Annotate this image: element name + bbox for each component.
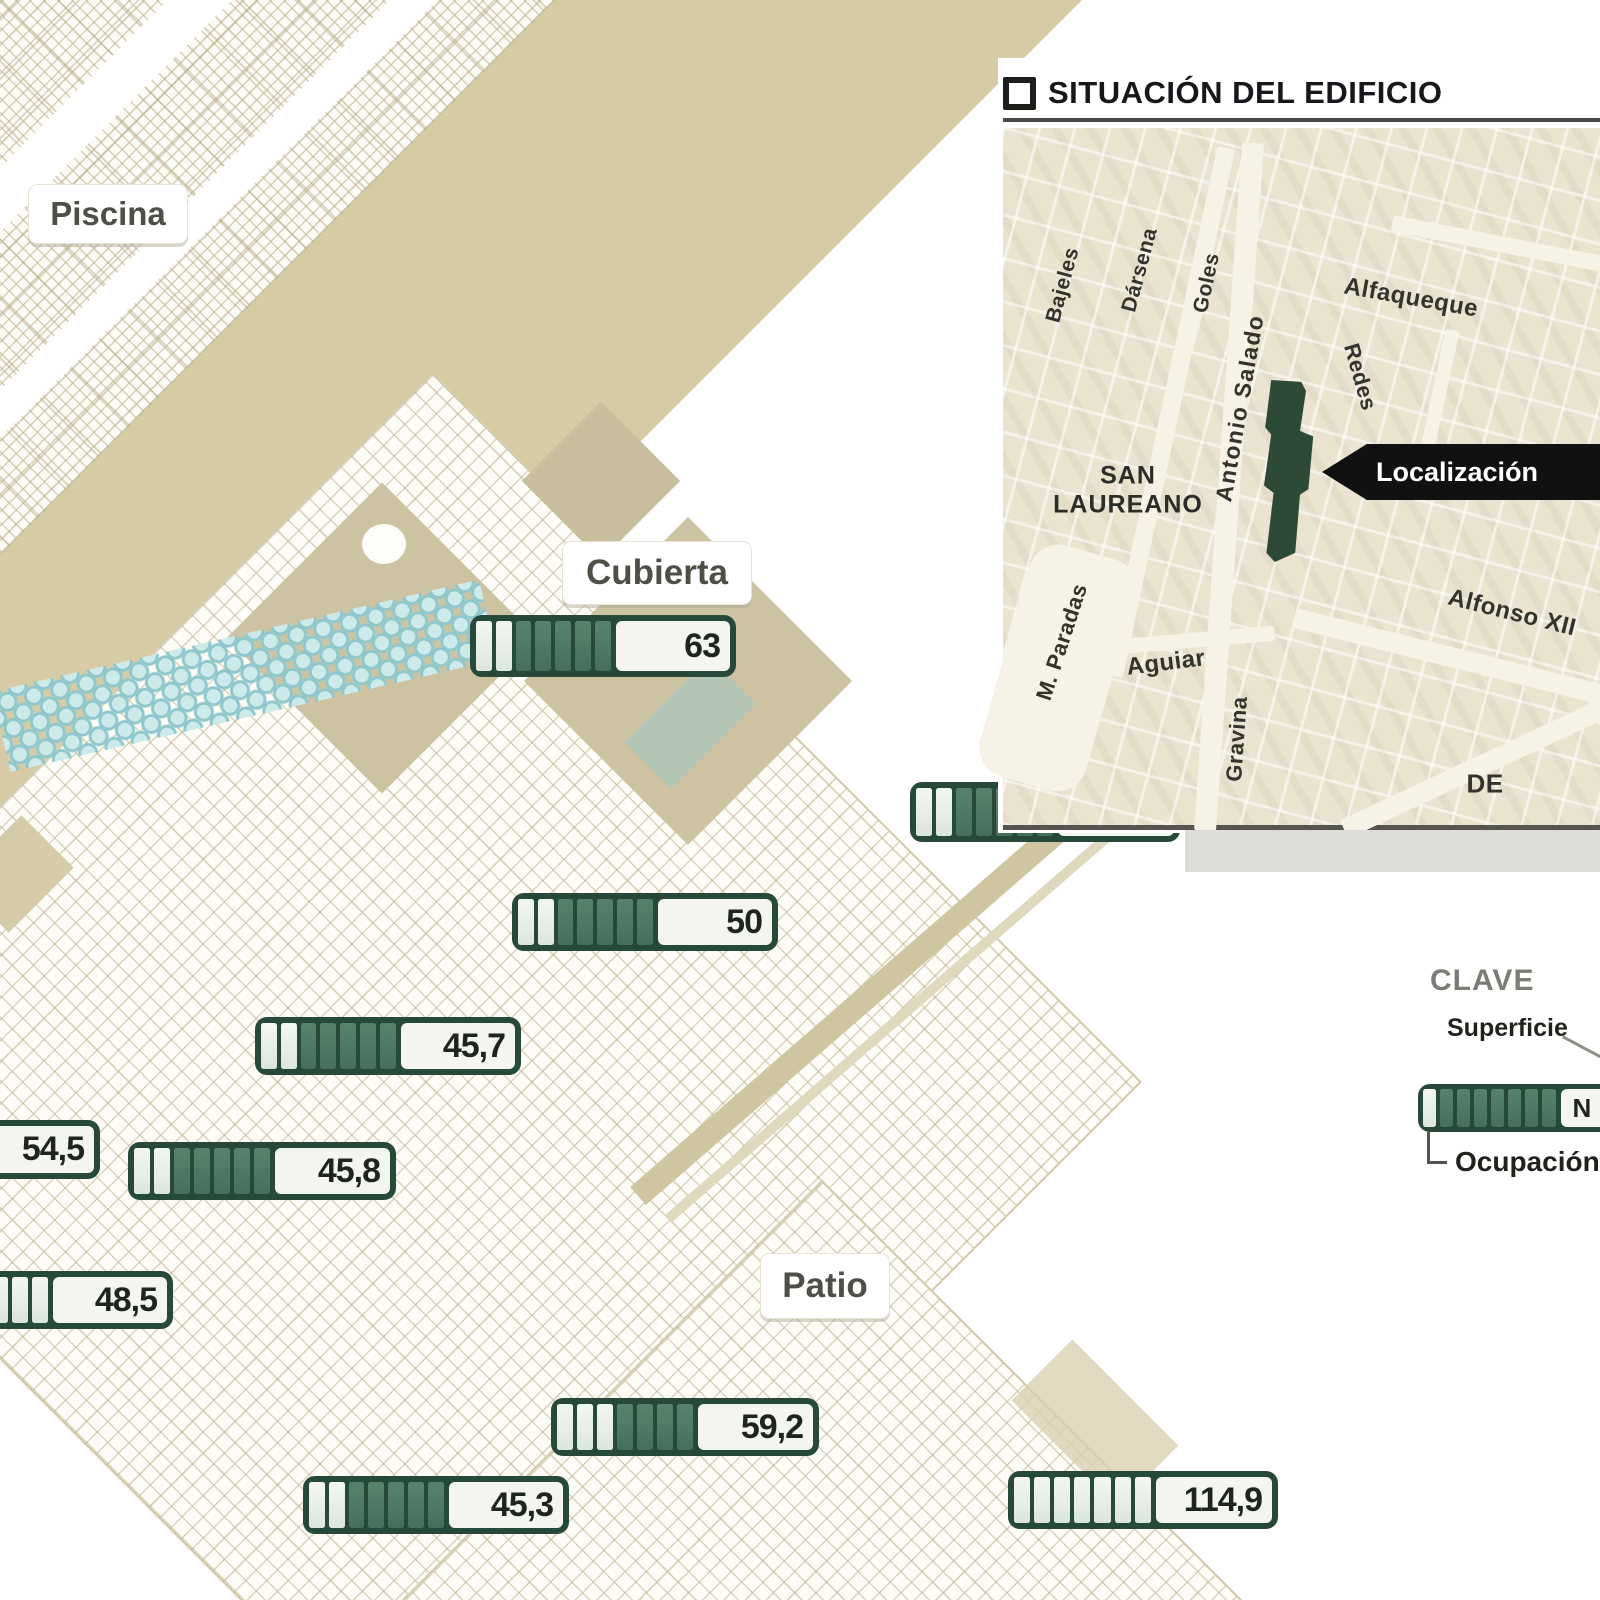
metric-badge: 50 <box>512 893 778 951</box>
occupancy-bar <box>261 1023 396 1069</box>
bar-segment <box>1054 1477 1070 1523</box>
map-street-shape <box>1391 215 1600 277</box>
legend-heading: CLAVE <box>1430 964 1534 998</box>
bar-segment <box>281 1023 297 1069</box>
bar-segment <box>558 899 574 945</box>
bar-segment <box>234 1148 250 1194</box>
map-title-text: SITUACIÓN DEL EDIFICIO <box>1048 75 1443 111</box>
highlighted-building <box>1258 380 1318 562</box>
bar-segment <box>1034 1477 1050 1523</box>
area-label-cubierta: Cubierta <box>562 541 752 605</box>
bar-segment <box>496 621 512 671</box>
bar-segment <box>1508 1089 1521 1127</box>
bar-segment <box>976 788 992 836</box>
bar-segment <box>134 1148 150 1194</box>
metric-badge: 114,9 <box>1008 1471 1278 1529</box>
surface-value: 59,2 <box>698 1404 813 1450</box>
legend-superficie-label: Superficie <box>1447 1014 1568 1043</box>
sample-value: N <box>1561 1089 1600 1127</box>
district-label: SAN LAUREANO <box>1053 461 1203 519</box>
map-title-rule <box>1003 118 1600 122</box>
legend-ocupacion-label: Ocupación <box>1455 1146 1600 1178</box>
occupancy-bar <box>518 899 653 945</box>
bar-segment <box>380 1023 396 1069</box>
bar-segment <box>538 899 554 945</box>
occupancy-bar <box>309 1482 444 1528</box>
bar-segment <box>194 1148 210 1194</box>
bar-segment <box>577 1404 593 1450</box>
surface-value: 48,5 <box>53 1277 167 1323</box>
bar-segment <box>518 899 534 945</box>
bar-segment <box>936 788 952 836</box>
occupancy-bar <box>1423 1089 1556 1127</box>
bar-segment <box>1440 1089 1453 1127</box>
surface-value: 63 <box>616 621 730 671</box>
bar-segment <box>637 1404 653 1450</box>
bar-segment <box>320 1023 336 1069</box>
legend-connector <box>1562 1035 1600 1059</box>
bar-segment <box>1014 1477 1030 1523</box>
legend-sample-badge: N <box>1418 1084 1600 1132</box>
bar-segment <box>388 1482 404 1528</box>
metric-badge: 48,5 <box>0 1271 173 1329</box>
bar-segment <box>214 1148 230 1194</box>
bar-segment <box>32 1277 48 1323</box>
bar-segment <box>657 1404 673 1450</box>
location-flag: Localización <box>1322 444 1600 500</box>
surface-value: 114,9 <box>1156 1477 1272 1523</box>
bar-segment <box>301 1023 317 1069</box>
metric-badge: 59,2 <box>551 1398 819 1456</box>
metric-badge: 45,8 <box>128 1142 396 1200</box>
bar-segment <box>12 1277 28 1323</box>
area-label-piscina: Piscina <box>28 184 188 244</box>
bar-segment <box>617 899 633 945</box>
surface-value: 54,5 <box>0 1126 94 1173</box>
bar-segment <box>0 1277 8 1323</box>
area-label-patio: Patio <box>760 1253 890 1319</box>
bar-segment <box>555 621 571 671</box>
occupancy-bar <box>134 1148 270 1194</box>
bar-segment <box>577 899 593 945</box>
occupancy-bar <box>557 1404 693 1450</box>
occupancy-bar <box>1014 1477 1151 1523</box>
bar-segment <box>261 1023 277 1069</box>
bar-segment <box>575 621 591 671</box>
street-label: DE <box>1466 769 1503 800</box>
bar-segment <box>677 1404 693 1450</box>
bar-segment <box>1457 1089 1470 1127</box>
bar-segment <box>476 621 492 671</box>
bar-segment <box>349 1482 365 1528</box>
bar-segment <box>368 1482 384 1528</box>
bar-segment <box>1423 1089 1436 1127</box>
bar-segment <box>408 1482 424 1528</box>
bar-segment <box>1474 1089 1487 1127</box>
map-street-shape <box>1340 694 1600 839</box>
bar-segment <box>516 621 532 671</box>
bar-segment <box>617 1404 633 1450</box>
metric-badge: 45,7 <box>255 1017 521 1075</box>
bar-segment <box>637 899 653 945</box>
bar-segment <box>154 1148 170 1194</box>
bar-segment <box>174 1148 190 1194</box>
bar-segment <box>535 621 551 671</box>
area-label-text: Patio <box>782 1266 868 1306</box>
bar-segment <box>1115 1477 1131 1523</box>
bar-segment <box>254 1148 270 1194</box>
bar-segment <box>557 1404 573 1450</box>
area-label-text: Piscina <box>50 195 166 233</box>
bar-segment <box>1525 1089 1538 1127</box>
map-footer-band <box>1185 830 1600 872</box>
legend-elbow-horizontal <box>1427 1161 1447 1164</box>
map-title: SITUACIÓN DEL EDIFICIO <box>1003 74 1443 112</box>
bar-segment <box>1074 1477 1090 1523</box>
surface-value: 45,7 <box>401 1023 515 1069</box>
bar-segment <box>1542 1089 1555 1127</box>
bar-segment <box>1135 1477 1151 1523</box>
bar-segment <box>329 1482 345 1528</box>
location-flag-text: Localización <box>1376 457 1538 488</box>
surface-value: 50 <box>658 899 772 945</box>
surface-value: 45,3 <box>449 1482 563 1528</box>
bar-segment <box>340 1023 356 1069</box>
courtyard-circle <box>362 524 406 564</box>
bar-segment <box>595 621 611 671</box>
metric-badge: 45,3 <box>303 1476 569 1534</box>
district-line1: SAN <box>1053 461 1203 490</box>
occupancy-bar <box>0 1277 48 1323</box>
bar-segment <box>597 899 613 945</box>
bar-segment <box>916 788 932 836</box>
district-line2: LAUREANO <box>1053 490 1203 519</box>
metric-badge: 54,5 <box>0 1120 100 1179</box>
metric-badge: 63 <box>470 615 736 677</box>
area-label-text: Cubierta <box>586 553 728 593</box>
square-bullet-icon <box>1003 77 1036 110</box>
occupancy-bar <box>476 621 611 671</box>
bar-segment <box>360 1023 376 1069</box>
bar-segment <box>1491 1089 1504 1127</box>
bar-segment <box>597 1404 613 1450</box>
infographic-canvas: Piscina Cubierta Patio 63 50 50 45,7 54,… <box>0 0 1600 1600</box>
bar-segment <box>428 1482 444 1528</box>
bar-segment <box>1094 1477 1110 1523</box>
surface-value: 45,8 <box>275 1148 390 1194</box>
legend-elbow-vertical <box>1427 1132 1430 1164</box>
bar-segment <box>956 788 972 836</box>
bar-segment <box>309 1482 325 1528</box>
